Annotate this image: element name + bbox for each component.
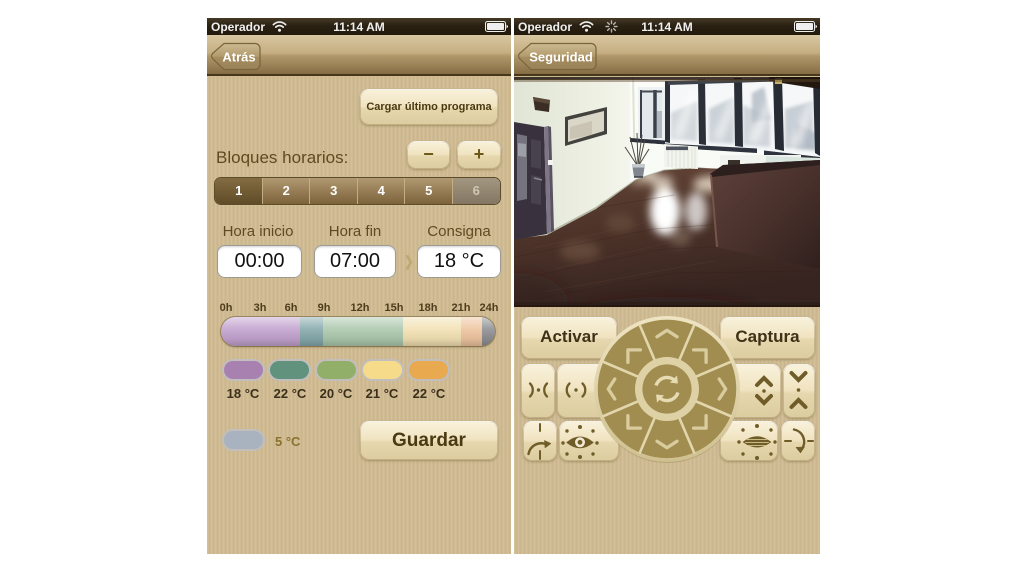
svg-text:Seguridad: Seguridad: [529, 50, 593, 65]
svg-text:Atrás: Atrás: [222, 50, 255, 65]
